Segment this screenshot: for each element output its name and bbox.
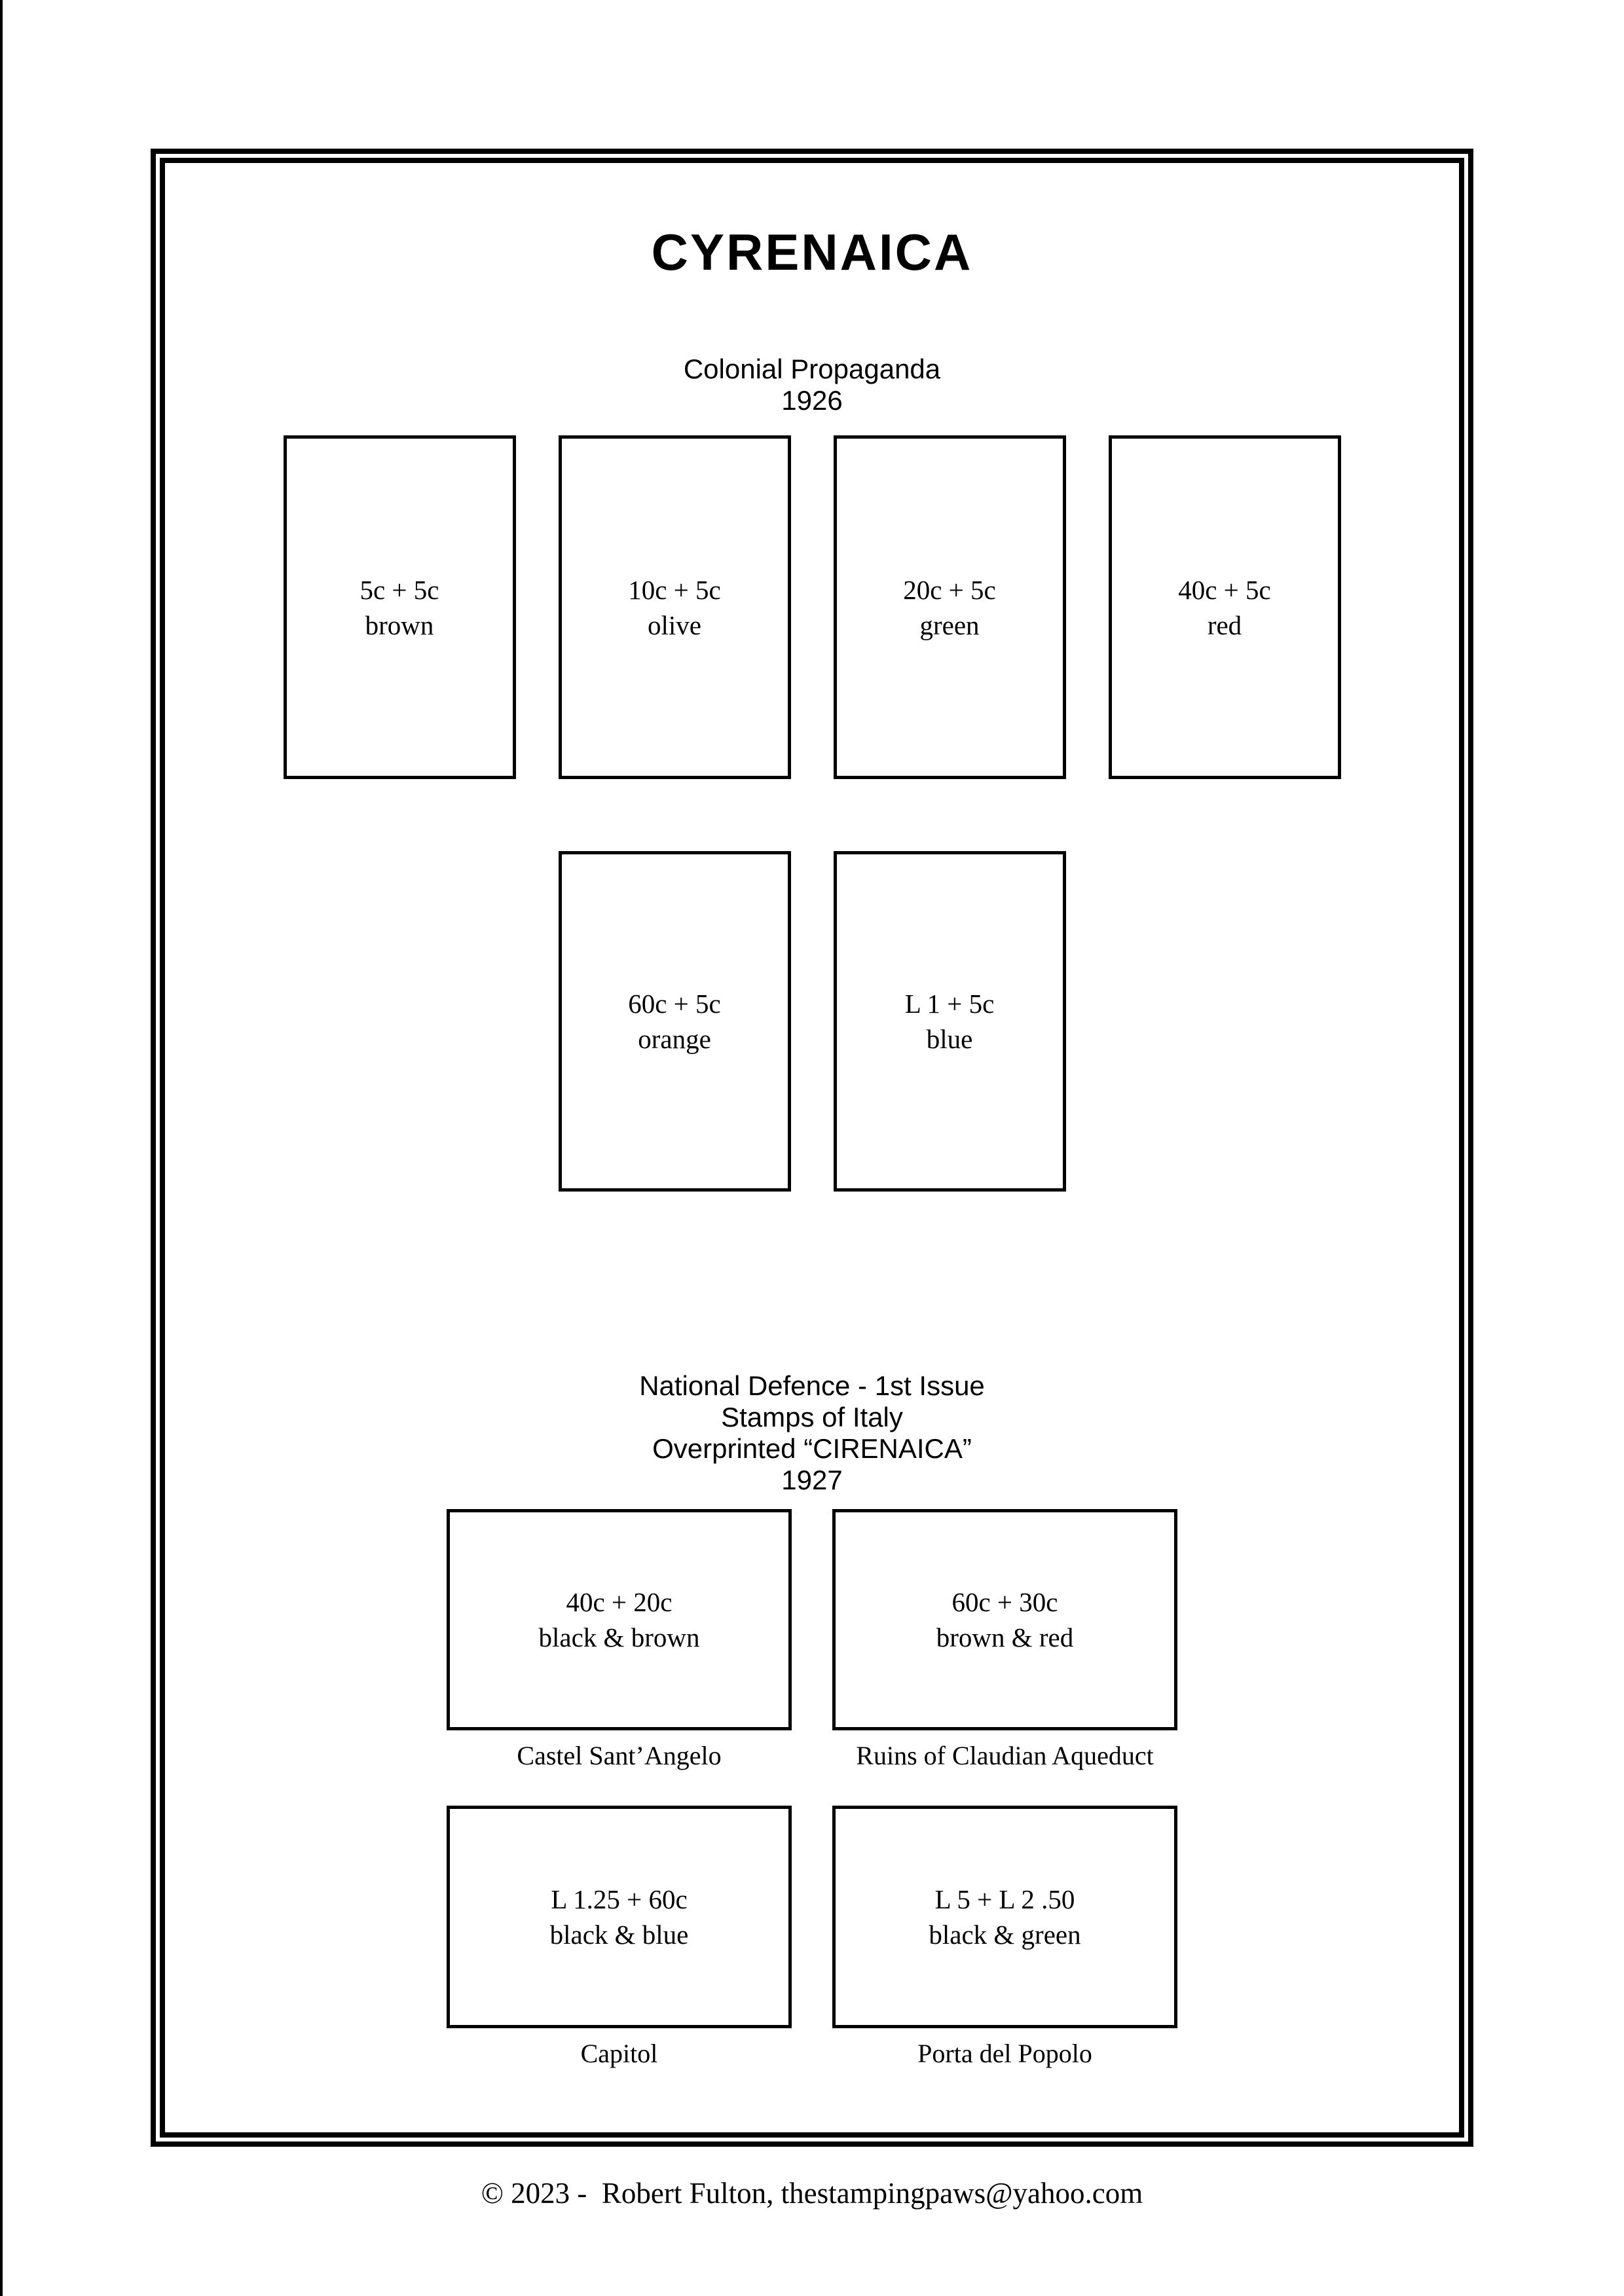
stamp-label: 20c + 5c green <box>903 572 996 643</box>
stamp-box: L 5 + L 2 .50 black & green <box>832 1806 1177 2028</box>
section-heading-colonial-propaganda: Colonial Propaganda 1926 <box>0 354 1624 416</box>
stamp-cell: L 5 + L 2 .50 black & green Porta del Po… <box>832 1806 1177 2068</box>
stamp-caption: Capitol <box>581 2039 658 2068</box>
stamp-row-1927-top: 40c + 20c black & brown Castel Sant’Ange… <box>0 1509 1624 1770</box>
stamp-color: green <box>903 608 996 643</box>
stamp-box: 60c + 30c brown & red <box>832 1509 1177 1730</box>
stamp-color: black & green <box>929 1917 1080 1952</box>
stamp-color: black & brown <box>539 1620 700 1655</box>
stamp-label: L 1 + 5c blue <box>905 986 995 1057</box>
stamp-row-1926-top: 5c + 5c brown 10c + 5c olive 20c + 5c gr… <box>0 435 1624 779</box>
stamp-color: red <box>1178 608 1271 643</box>
stamp-label: 10c + 5c olive <box>628 572 721 643</box>
stamp-color: black & blue <box>550 1917 689 1952</box>
stamp-row-1927-bottom: L 1.25 + 60c black & blue Capitol L 5 + … <box>0 1806 1624 2068</box>
stamp-box: 60c + 5c orange <box>559 851 791 1192</box>
page-title: CYRENAICA <box>0 216 1624 288</box>
copyright-footer: © 2023 - Robert Fulton, thestampingpaws@… <box>0 2177 1624 2210</box>
section-heading-line: National Defence - 1st Issue <box>0 1370 1624 1402</box>
stamp-label: 60c + 30c brown & red <box>936 1584 1074 1655</box>
stamp-cell: 40c + 20c black & brown Castel Sant’Ange… <box>447 1509 792 1770</box>
stamp-denomination: 5c + 5c <box>360 572 439 608</box>
stamp-label: 40c + 5c red <box>1178 572 1271 643</box>
stamp-label: L 5 + L 2 .50 black & green <box>929 1882 1080 1952</box>
stamp-denomination: 60c + 30c <box>936 1584 1074 1620</box>
stamp-caption: Porta del Popolo <box>917 2039 1092 2068</box>
section-heading-national-defence: National Defence - 1st Issue Stamps of I… <box>0 1370 1624 1496</box>
section-heading-line: Stamps of Italy <box>0 1402 1624 1433</box>
stamp-denomination: 60c + 5c <box>628 986 721 1021</box>
stamp-label: 60c + 5c orange <box>628 986 721 1057</box>
stamp-color: brown <box>360 608 439 643</box>
stamp-box: 40c + 20c black & brown <box>447 1509 792 1730</box>
stamp-color: brown & red <box>936 1620 1074 1655</box>
stamp-box: L 1.25 + 60c black & blue <box>447 1806 792 2028</box>
stamp-denomination: L 5 + L 2 .50 <box>929 1882 1080 1917</box>
stamp-box: 20c + 5c green <box>834 435 1066 779</box>
stamp-box: 5c + 5c brown <box>284 435 516 779</box>
stamp-color: orange <box>628 1021 721 1057</box>
stamp-denomination: 40c + 5c <box>1178 572 1271 608</box>
stamp-box: 40c + 5c red <box>1109 435 1341 779</box>
stamp-denomination: L 1 + 5c <box>905 986 995 1021</box>
section-heading-line: Colonial Propaganda <box>0 354 1624 385</box>
stamp-box: 10c + 5c olive <box>559 435 791 779</box>
stamp-denomination: 10c + 5c <box>628 572 721 608</box>
stamp-caption: Ruins of Claudian Aqueduct <box>856 1741 1153 1770</box>
stamp-row-1926-bottom: 60c + 5c orange L 1 + 5c blue <box>0 851 1624 1192</box>
stamp-cell: L 1.25 + 60c black & blue Capitol <box>447 1806 792 2068</box>
stamp-box: L 1 + 5c blue <box>834 851 1066 1192</box>
section-heading-year: 1926 <box>0 385 1624 416</box>
section-heading-line: Overprinted “CIRENAICA” <box>0 1433 1624 1465</box>
album-page: CYRENAICA Colonial Propaganda 1926 5c + … <box>0 0 1624 2296</box>
stamp-cell: 60c + 30c brown & red Ruins of Claudian … <box>832 1509 1177 1770</box>
stamp-color: olive <box>628 608 721 643</box>
stamp-denomination: 20c + 5c <box>903 572 996 608</box>
stamp-label: 5c + 5c brown <box>360 572 439 643</box>
stamp-label: L 1.25 + 60c black & blue <box>550 1882 689 1952</box>
stamp-denomination: L 1.25 + 60c <box>550 1882 689 1917</box>
stamp-caption: Castel Sant’Angelo <box>517 1741 721 1770</box>
section-heading-year: 1927 <box>0 1465 1624 1496</box>
stamp-label: 40c + 20c black & brown <box>539 1584 700 1655</box>
stamp-color: blue <box>905 1021 995 1057</box>
stamp-denomination: 40c + 20c <box>539 1584 700 1620</box>
